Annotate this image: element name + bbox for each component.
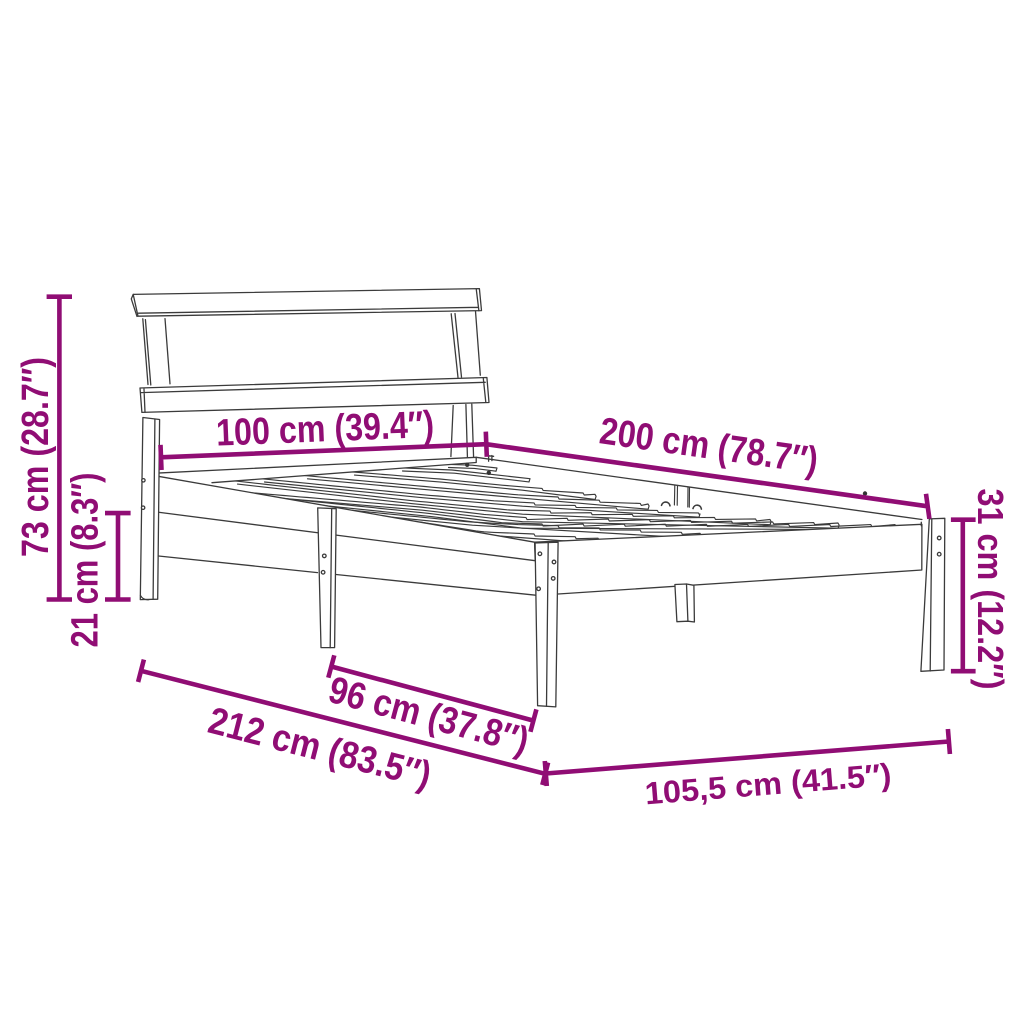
svg-text:31 cm (12.2″): 31 cm (12.2″) <box>970 489 1011 690</box>
svg-text:100 cm (39.4″): 100 cm (39.4″) <box>215 404 435 455</box>
svg-text:73 cm (28.7″): 73 cm (28.7″) <box>15 357 57 557</box>
svg-text:21 cm (8.3″): 21 cm (8.3″) <box>65 473 107 648</box>
